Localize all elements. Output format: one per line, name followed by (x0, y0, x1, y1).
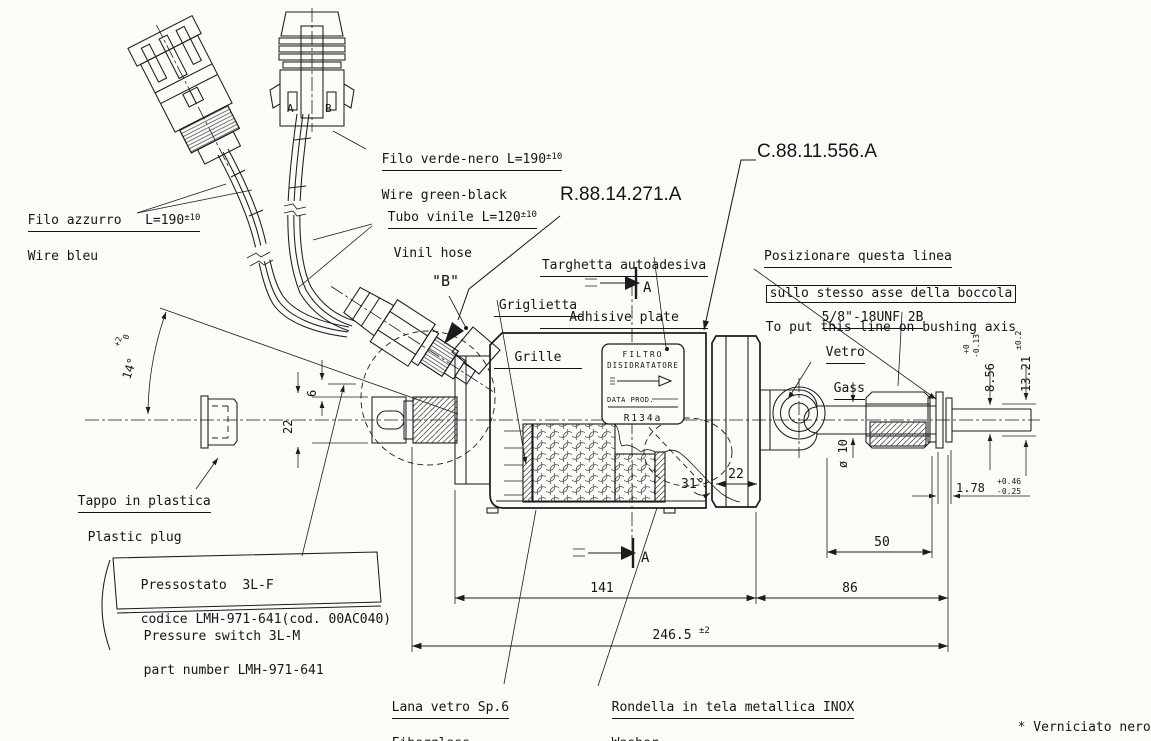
pin-a-label: A (287, 102, 294, 115)
callout-vinyl-hose: Tubo vinile L=120±10 Vinil hose (372, 193, 537, 263)
plug-en: Plastic plug (88, 530, 182, 545)
callout-wire-blue: Filo azzurro L=190±10 Wire bleu (12, 196, 200, 266)
dim-141: 141 (590, 581, 613, 596)
callout-sight-glass: Vetro Gass (810, 328, 865, 400)
plate-line2: DISIDRATATORE (607, 361, 679, 370)
dim-856-toldn: -0.13 (972, 334, 981, 358)
dim-178-tolup: +0.46 (997, 477, 1021, 486)
connector-right: A B (270, 8, 354, 132)
plastic-plug (201, 396, 237, 448)
filter-internals (504, 424, 740, 502)
dim-6: 6 (305, 390, 319, 397)
leader-c88 (704, 160, 756, 330)
note-black-painted: * Verniciato nero Black painted (1002, 703, 1151, 741)
callout-washer: Rondella in tela metallica INOX Washer (596, 683, 854, 741)
hose-tol: ±10 (521, 210, 537, 220)
glass-en: Gass (834, 381, 865, 400)
dim-86: 86 (842, 581, 858, 596)
hose-it: Tubo vinile (388, 210, 482, 225)
plug-it: Tappo in plastica (78, 494, 211, 513)
pressostato-en2: part number LMH-971-641 (144, 663, 324, 678)
wiring-harness (218, 114, 355, 337)
connector-left (124, 9, 260, 182)
dim-31deg: 31° (681, 477, 704, 492)
pressostato-en1: Pressure switch 3L-M (144, 629, 301, 644)
position-l1: Posizionare questa linea (764, 249, 952, 268)
dim-50: 50 (874, 535, 890, 550)
inlet-nut (413, 397, 457, 443)
grille-it: Griglietta (494, 298, 582, 317)
note-star-it: * Verniciato nero (1018, 720, 1151, 735)
dim-22-cap: 22 (728, 467, 744, 482)
wire-gb-it: Filo verde-nero (382, 152, 507, 167)
dim-1321: 13.21 (1019, 356, 1033, 392)
fiberglass-mesh (533, 424, 615, 502)
washer-en: Washer (612, 736, 659, 741)
detail-b-label: "B" (432, 272, 459, 292)
grille-strip (523, 424, 532, 502)
dim-246-tol: ±2 (699, 626, 710, 636)
wire-blue-len: L=190 (145, 213, 184, 228)
part-number-filter: C.88.11.556.A (757, 141, 877, 163)
dim-14deg: 14° (120, 356, 140, 381)
pressostato-text-en: Pressure switch 3L-M part number LMH-971… (128, 612, 324, 680)
adhesive-plate: FILTRO DISIDRATATORE DATA PROD. R134a (602, 344, 684, 424)
dim-856: 8.56 (983, 363, 997, 392)
washer-it: Rondella in tela metallica INOX (612, 700, 855, 719)
pin-b-label: B (325, 102, 332, 115)
thread-spec-label: 5/8"-18UNF 2B (806, 293, 923, 329)
hose-en: Vinil hose (394, 246, 472, 261)
callout-fiberglass: Lana vetro Sp.6 Fiberglass (376, 683, 509, 741)
pressure-switch (317, 265, 506, 412)
dim-856-tolup: +0 (962, 344, 971, 354)
technical-drawing-page: A B (0, 0, 1151, 741)
callout-grille: Griglietta Grille (494, 264, 582, 386)
fiberglass-en: Fiberglass (392, 736, 470, 741)
wire-blue-en: Wire bleu (28, 249, 98, 264)
wire-gb-tol: ±10 (546, 152, 562, 162)
glass-it: Vetro (826, 345, 865, 364)
wire-gb-len: L=190 (507, 152, 546, 167)
dim-178-toldn: -0.25 (997, 487, 1021, 496)
grille-en: Grille (494, 350, 582, 369)
thread-spec-text: 5/8"-18UNF 2B (822, 310, 924, 329)
hose-len: L=120 (482, 210, 521, 225)
wire-blue-it: Filo azzurro (28, 213, 145, 228)
dim-246: 246.5 (652, 628, 691, 643)
dim-178: 1.78 (956, 481, 985, 495)
plate-line4: R134a (624, 413, 663, 424)
dim-22-tube: 22 (281, 420, 295, 434)
wire-blue-tol: ±10 (184, 213, 200, 223)
dim-dia10: ø 10 (836, 439, 850, 468)
callout-plastic-plug: Tappo in plastica Plastic plug (62, 477, 211, 547)
pressostato-l1: Pressostato 3L-F (141, 578, 274, 593)
metal-washer (655, 452, 665, 502)
plate-line3: DATA PROD. (607, 396, 654, 404)
part-number-switch: R.88.14.271.A (560, 184, 681, 206)
fiberglass-it: Lana vetro Sp.6 (392, 700, 509, 719)
plate-line1: FILTRO (623, 350, 664, 359)
